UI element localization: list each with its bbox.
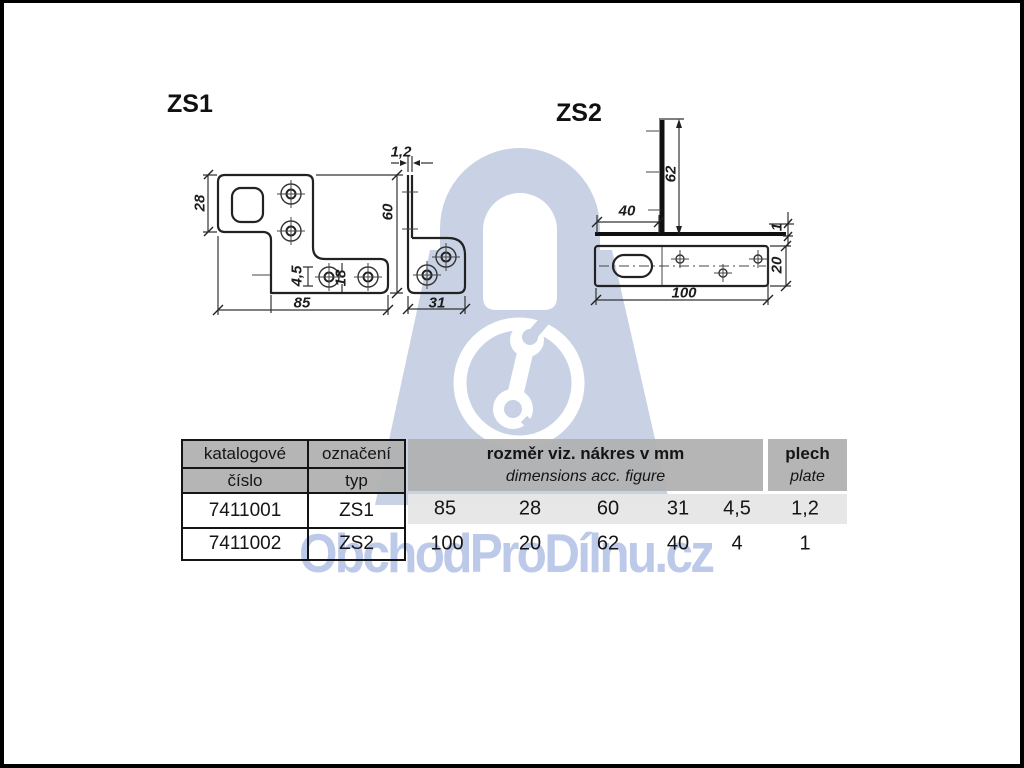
zs1-dim-top-height: 28: [192, 195, 209, 212]
row-stripe: [408, 494, 847, 524]
dim-value: 60: [597, 498, 619, 521]
catalog-sheet: ObchodProDílnu.cz: [0, 0, 1024, 768]
header-catalog-line2: číslo: [181, 467, 309, 494]
bolt-hole: [413, 261, 441, 289]
header-type-line2: typ: [307, 467, 406, 494]
dim-value: 28: [519, 498, 541, 521]
header-type-line1: označení: [307, 439, 406, 469]
zs2-dim-thickness: 1: [769, 223, 786, 231]
bolt-hole: [354, 263, 382, 291]
zs2-view-label: ZS2: [556, 99, 602, 128]
zs1-view-label: ZS1: [167, 90, 213, 119]
header-plate-cz: plech: [785, 443, 829, 466]
cell-type: ZS2: [307, 527, 406, 561]
cell-catalog-number: 7411001: [181, 492, 309, 529]
bolt-hole: [277, 217, 305, 245]
technical-drawing: [0, 0, 1024, 768]
cell-catalog-number: 7411002: [181, 527, 309, 561]
zs2-profile-view: [592, 119, 794, 246]
plate-value: 1: [799, 533, 810, 556]
zs1-dim-hole-spacing: 18: [333, 270, 350, 287]
dim-value: 31: [667, 498, 689, 521]
small-hole: [714, 264, 732, 282]
header-plate-en: plate: [790, 466, 825, 488]
header-dimensions-en: dimensions acc. figure: [506, 466, 665, 488]
header-dimensions-cz: rozměr viz. nákres v mm: [487, 443, 684, 466]
square-hole: [232, 188, 263, 222]
dim-value: 85: [434, 498, 456, 521]
dim-value: 20: [519, 533, 541, 556]
zs2-dim-length: 100: [671, 285, 696, 302]
zs1-dim-hole-diameter: 4,5: [289, 266, 306, 287]
zs2-dim-height: 62: [663, 166, 680, 183]
cell-type: ZS1: [307, 492, 406, 529]
small-hole: [671, 250, 689, 268]
zs1-dim-height: 60: [380, 204, 397, 221]
dim-value: 4: [731, 533, 742, 556]
dim-value: 62: [597, 533, 619, 556]
zs2-dim-foot: 40: [619, 203, 636, 220]
zs1-side-view: [391, 156, 470, 314]
zs2-dim-width: 20: [769, 257, 786, 274]
bolt-hole: [277, 180, 305, 208]
dim-value: 4,5: [723, 498, 751, 521]
header-plate: plech plate: [768, 439, 847, 491]
dim-value: 40: [667, 533, 689, 556]
header-catalog-line1: katalogové: [181, 439, 309, 469]
bolt-hole: [432, 243, 460, 271]
zs1-dim-thickness: 1,2: [391, 144, 412, 161]
header-dimensions: rozměr viz. nákres v mm dimensions acc. …: [408, 439, 763, 491]
zs1-flat-view: [203, 170, 403, 315]
small-hole: [749, 250, 767, 268]
zs1-dim-width: 85: [294, 295, 311, 312]
spec-table: katalogové číslo označení typ 7411001 74…: [181, 439, 847, 561]
zs1-dim-flange: 31: [429, 295, 446, 312]
plate-value: 1,2: [791, 498, 819, 521]
dim-value: 100: [430, 533, 463, 556]
